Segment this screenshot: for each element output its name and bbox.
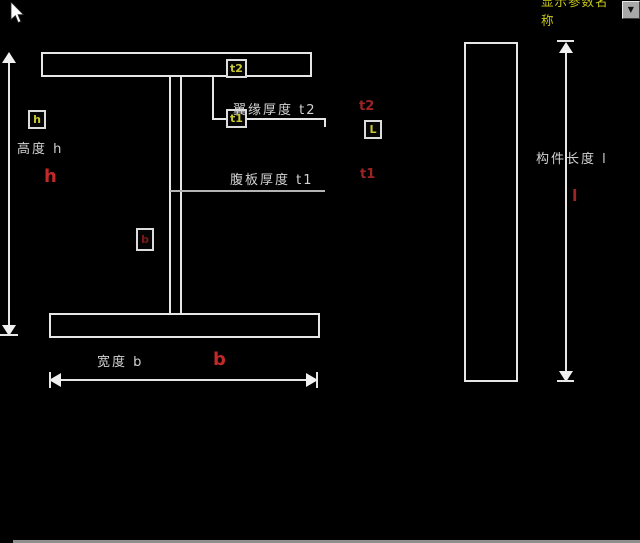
length-dimension-line <box>565 50 567 375</box>
web-leader-horizontal <box>170 190 325 192</box>
height-label: 高度 h <box>17 138 63 157</box>
chevron-down-icon[interactable]: ▼ <box>622 1 640 19</box>
param-box-b[interactable]: b <box>136 228 154 251</box>
height-arrow-up-icon <box>2 52 16 63</box>
bottom-flange-outline <box>49 313 320 338</box>
web-outline <box>169 77 182 314</box>
param-box-h[interactable]: h <box>28 110 46 129</box>
width-dimension-tick-right <box>316 372 318 388</box>
length-dimension-tick-top <box>557 40 574 42</box>
param-box-L[interactable]: L <box>364 120 382 139</box>
member-length-label: 构件长度 l <box>536 148 608 167</box>
cad-drawing-canvas: 显示参数名称 ▼ t2 t1 h L b 翼缘厚度 t2 高度 h 腹板厚度 t… <box>0 0 640 543</box>
show-parameter-names-dropdown[interactable]: 显示参数名称 ▼ <box>541 1 640 18</box>
top-flange-outline <box>41 52 312 77</box>
param-t2-red: t2 <box>359 99 374 114</box>
flange-leader-hook <box>324 118 326 127</box>
length-dimension-tick-bottom <box>557 380 574 382</box>
member-side-view-outline <box>464 42 518 382</box>
mouse-cursor-icon <box>10 2 26 26</box>
param-l-red: l <box>572 186 577 205</box>
width-dimension-tick-left <box>49 372 51 388</box>
height-dimension-line <box>8 60 10 328</box>
param-h-red: h <box>44 166 57 187</box>
param-t1-red: t1 <box>360 167 375 182</box>
dropdown-selected-value[interactable]: 显示参数名称 <box>541 0 619 29</box>
param-box-t2[interactable]: t2 <box>226 59 247 78</box>
width-dimension-line <box>58 379 310 381</box>
height-dimension-tick <box>0 334 18 336</box>
web-thickness-label: 腹板厚度 t1 <box>230 169 314 188</box>
flange-leader-vertical <box>212 77 214 120</box>
param-b-red: b <box>213 349 226 370</box>
width-label: 宽度 b <box>97 351 143 370</box>
flange-thickness-label: 翼缘厚度 t2 <box>233 99 317 118</box>
length-arrow-up-icon <box>559 42 573 53</box>
